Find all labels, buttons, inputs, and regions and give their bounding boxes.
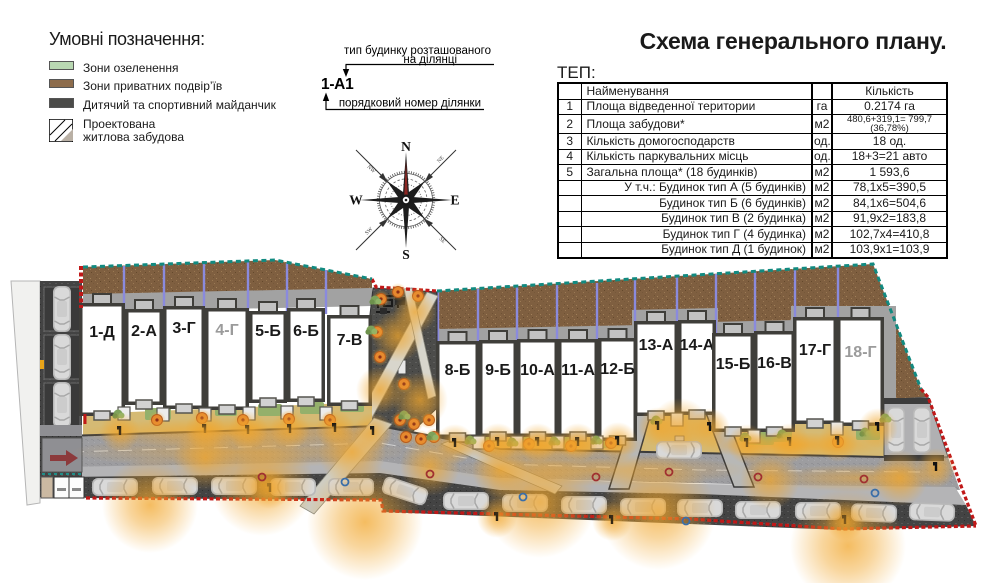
svg-text:7-В: 7-В [337, 332, 363, 349]
svg-text:15-Б: 15-Б [716, 356, 751, 373]
svg-text:10-А: 10-А [520, 362, 555, 379]
svg-text:SW: SW [364, 226, 375, 237]
svg-text:8-Б: 8-Б [445, 362, 471, 379]
svg-text:5-Б: 5-Б [255, 323, 281, 340]
svg-text:W: W [349, 193, 363, 208]
svg-text:12-Б: 12-Б [600, 361, 635, 378]
svg-text:SE: SE [438, 236, 447, 245]
svg-text:13-А: 13-А [639, 337, 674, 354]
svg-text:17-Г: 17-Г [799, 342, 831, 359]
svg-text:16-В: 16-В [757, 355, 792, 372]
svg-text:2-А: 2-А [131, 323, 157, 340]
svg-text:4-Г: 4-Г [215, 322, 238, 339]
svg-text:14-А: 14-А [680, 337, 715, 354]
svg-text:E: E [450, 193, 459, 208]
svg-text:N: N [401, 140, 411, 154]
svg-text:NW: NW [366, 164, 377, 175]
svg-text:6-Б: 6-Б [293, 323, 319, 340]
svg-text:9-Б: 9-Б [485, 362, 511, 379]
svg-text:18-Г: 18-Г [844, 344, 876, 361]
svg-text:11-А: 11-А [561, 362, 595, 379]
svg-text:NE: NE [436, 155, 446, 165]
svg-text:3-Г: 3-Г [172, 320, 195, 337]
svg-text:1-Д: 1-Д [89, 324, 115, 341]
svg-text:порядковий номер ділянки: порядковий номер ділянки [339, 98, 481, 110]
svg-text:1-А1: 1-А1 [321, 76, 354, 93]
